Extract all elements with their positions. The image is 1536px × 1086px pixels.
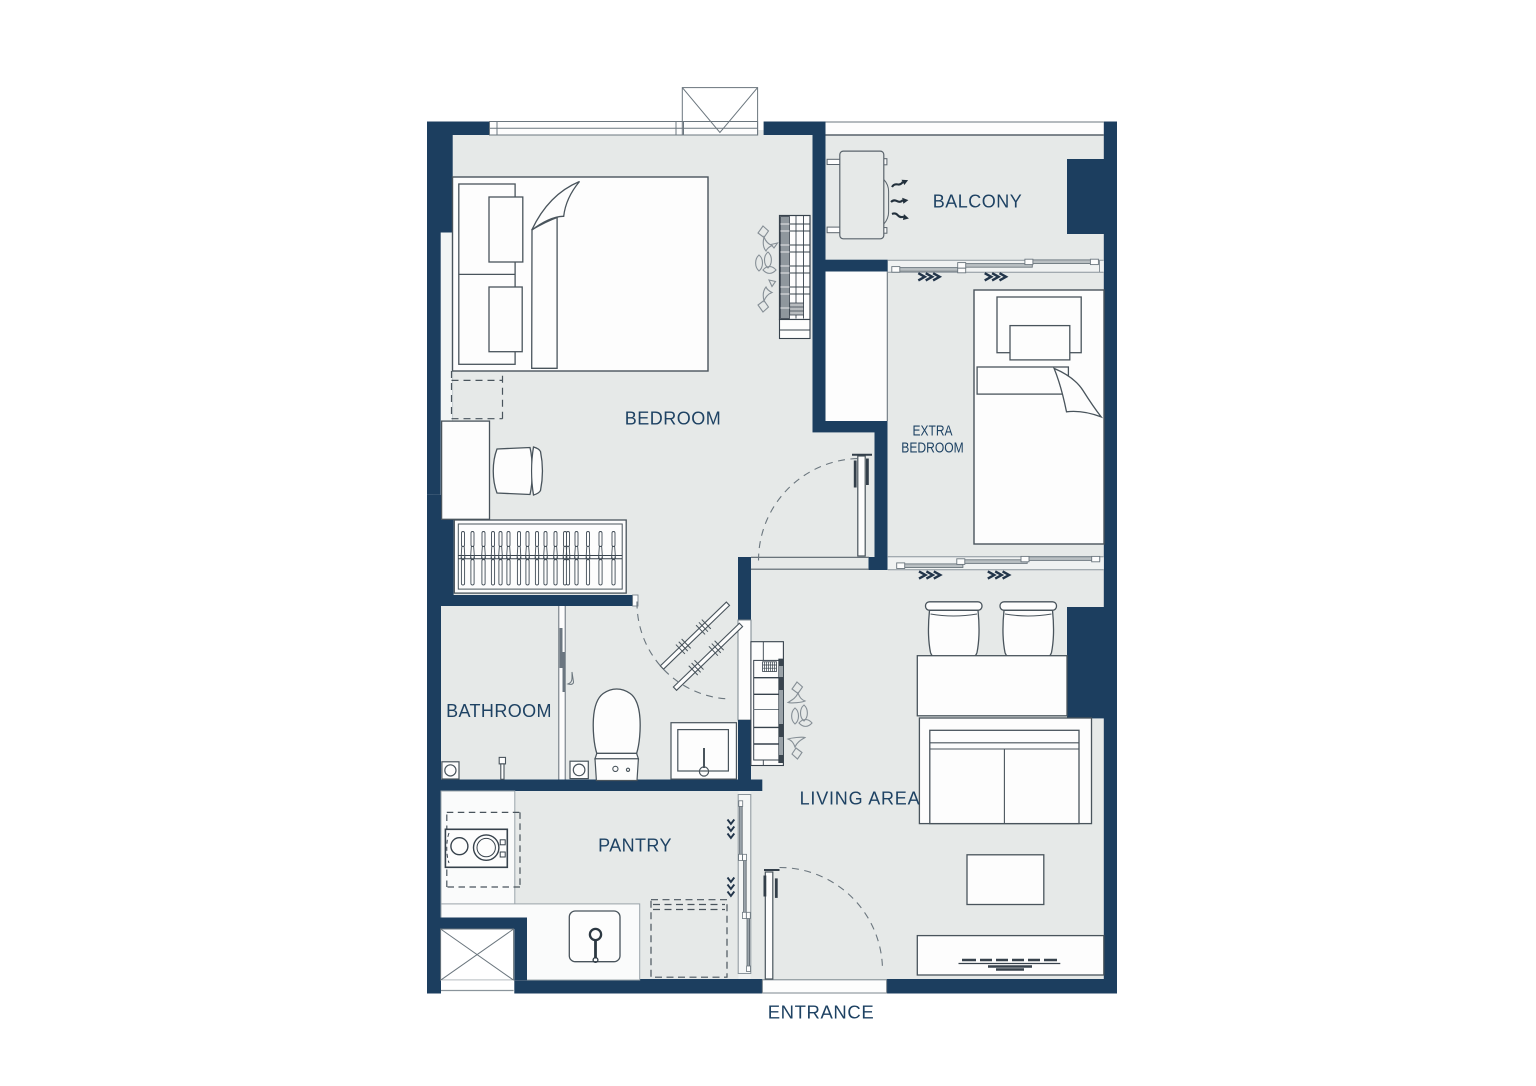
- svg-text:ENTRANCE: ENTRANCE: [768, 1002, 875, 1023]
- svg-text:EXTRA: EXTRA: [913, 423, 953, 440]
- svg-text:PANTRY: PANTRY: [598, 836, 672, 856]
- svg-text:BEDROOM: BEDROOM: [901, 440, 964, 457]
- svg-text:BALCONY: BALCONY: [933, 192, 1023, 212]
- svg-text:BATHROOM: BATHROOM: [446, 701, 552, 721]
- svg-text:LIVING AREA: LIVING AREA: [800, 789, 921, 809]
- svg-text:BEDROOM: BEDROOM: [625, 409, 722, 429]
